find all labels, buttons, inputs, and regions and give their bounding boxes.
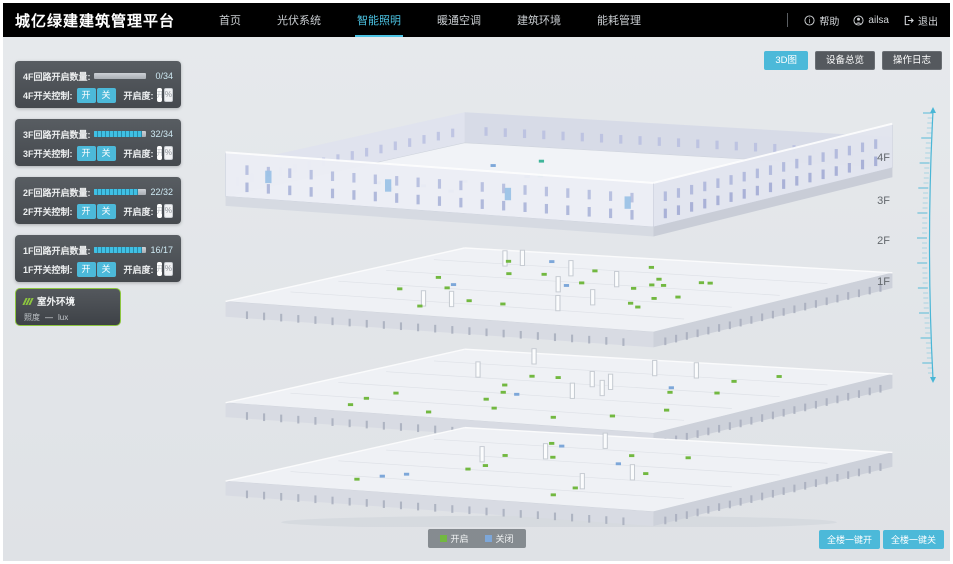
circuit-count-value: 0/34	[155, 71, 173, 81]
all-floors-on-button[interactable]: 全楼一键开	[819, 530, 880, 549]
nav-building-env[interactable]: 建筑环境	[515, 3, 563, 37]
switch-control-label: 2F开关控制:	[23, 205, 73, 218]
legend-off-swatch	[485, 535, 492, 542]
outdoor-environment-panel: 室外环境 照度 — lux	[15, 288, 121, 326]
dim-label: 开启度:	[124, 205, 154, 218]
circuit-count-label: 3F回路开启数量:	[23, 128, 91, 141]
switch-off-button[interactable]: 关	[97, 146, 116, 161]
floor-panels-column: 4F回路开启数量: 0/34 4F开关控制: 开 关 开启度: 开启度 %	[15, 61, 181, 293]
bulk-controls: 全楼一键开 全楼一键关	[819, 530, 944, 549]
logout-icon	[903, 15, 914, 26]
floor-marker-2f: 2F	[877, 235, 890, 247]
outdoor-panel-title: 室外环境	[37, 294, 75, 308]
floor-panel-4f: 4F回路开启数量: 0/34 4F开关控制: 开 关 开启度: 开启度 %	[15, 61, 181, 108]
switch-control-label: 4F开关控制:	[23, 89, 73, 102]
illuminance-label: 照度	[24, 312, 40, 323]
circuit-progress-bar	[94, 131, 146, 137]
dim-percent-button[interactable]: %	[164, 146, 173, 160]
dim-label: 开启度:	[124, 89, 154, 102]
dim-input[interactable]: 开启度	[157, 146, 162, 160]
user-menu[interactable]: ailsa	[853, 15, 889, 26]
circuit-count-label: 1F回路开启数量:	[23, 244, 91, 257]
platform-title: 城亿绿建建筑管理平台	[15, 10, 175, 31]
dim-percent-button[interactable]: %	[164, 204, 173, 218]
dim-percent-button[interactable]: %	[164, 88, 173, 102]
outdoor-environment-icon	[24, 298, 32, 305]
header-divider	[787, 13, 788, 27]
main-content: 4F回路开启数量: 0/34 4F开关控制: 开 关 开启度: 开启度 %	[3, 37, 950, 561]
dim-label: 开启度:	[124, 147, 154, 160]
main-nav: 首页 光伏系统 智能照明 暖通空调 建筑环境 能耗管理	[217, 3, 643, 37]
circuit-count-value: 32/34	[150, 129, 173, 139]
dim-label: 开启度:	[124, 263, 154, 276]
all-floors-off-button[interactable]: 全楼一键关	[883, 530, 944, 549]
circuit-progress-bar	[94, 73, 146, 79]
operation-log-button[interactable]: 操作日志	[882, 51, 942, 70]
switch-on-button[interactable]: 开	[77, 88, 96, 103]
svg-text:i: i	[809, 17, 811, 24]
switch-off-button[interactable]: 关	[97, 88, 116, 103]
floor-marker-4f: 4F	[877, 152, 890, 164]
switch-control-label: 1F开关控制:	[23, 263, 73, 276]
switch-on-button[interactable]: 开	[77, 262, 96, 277]
app-window: 城亿绿建建筑管理平台 首页 光伏系统 智能照明 暖通空调 建筑环境 能耗管理 i…	[0, 0, 953, 564]
legend-on-label: 开启	[450, 532, 468, 545]
help-button[interactable]: i 帮助	[804, 13, 839, 28]
dim-input[interactable]: 开启度	[157, 88, 162, 102]
floor-marker-1f: 1F	[877, 276, 890, 288]
nav-energy[interactable]: 能耗管理	[595, 3, 643, 37]
view-toolbar: 3D图 设备总览 操作日志	[764, 51, 942, 70]
nav-home[interactable]: 首页	[217, 3, 243, 37]
circuit-progress-bar	[94, 189, 146, 195]
floor-zoom-slider[interactable]	[912, 105, 940, 385]
dim-input[interactable]: 开启度	[157, 204, 162, 218]
nav-smart-lighting[interactable]: 智能照明	[355, 3, 403, 37]
floor-marker-3f: 3F	[877, 195, 890, 207]
logout-button[interactable]: 退出	[903, 13, 938, 28]
header-user-area: i 帮助 ailsa 退出	[787, 13, 938, 28]
dim-input[interactable]: 开启度	[157, 262, 162, 276]
switch-off-button[interactable]: 关	[97, 204, 116, 219]
illuminance-value: —	[45, 313, 53, 322]
switch-off-button[interactable]: 关	[97, 262, 116, 277]
floor-panel-3f: 3F回路开启数量: 32/34 3F开关控制: 开 关 开启度: 开启度 %	[15, 119, 181, 166]
switch-on-button[interactable]: 开	[77, 204, 96, 219]
floor-panel-1f: 1F回路开启数量: 16/17 1F开关控制: 开 关 开启度: 开启度 %	[15, 235, 181, 282]
circuit-count-label: 2F回路开启数量:	[23, 186, 91, 199]
top-header: 城亿绿建建筑管理平台 首页 光伏系统 智能照明 暖通空调 建筑环境 能耗管理 i…	[3, 3, 950, 37]
circuit-progress-bar	[94, 247, 146, 253]
switch-control-label: 3F开关控制:	[23, 147, 73, 160]
circuit-count-label: 4F回路开启数量:	[23, 70, 91, 83]
dim-percent-button[interactable]: %	[164, 262, 173, 276]
legend-on-swatch	[439, 535, 446, 542]
switch-on-button[interactable]: 开	[77, 146, 96, 161]
device-overview-button[interactable]: 设备总览	[815, 51, 875, 70]
illuminance-unit: lux	[58, 313, 68, 322]
nav-hvac[interactable]: 暖通空调	[435, 3, 483, 37]
building-3d-view[interactable]	[213, 95, 905, 527]
circuit-count-value: 16/17	[150, 245, 173, 255]
help-icon: i	[804, 15, 815, 26]
username: ailsa	[868, 15, 889, 26]
nav-pv-system[interactable]: 光伏系统	[275, 3, 323, 37]
view-3d-button[interactable]: 3D图	[764, 51, 808, 70]
lighting-legend: 开启 关闭	[427, 529, 525, 548]
legend-off-label: 关闭	[496, 532, 514, 545]
user-avatar-icon	[853, 15, 864, 26]
circuit-count-value: 22/32	[150, 187, 173, 197]
floor-panel-2f: 2F回路开启数量: 22/32 2F开关控制: 开 关 开启度: 开启度 %	[15, 177, 181, 224]
